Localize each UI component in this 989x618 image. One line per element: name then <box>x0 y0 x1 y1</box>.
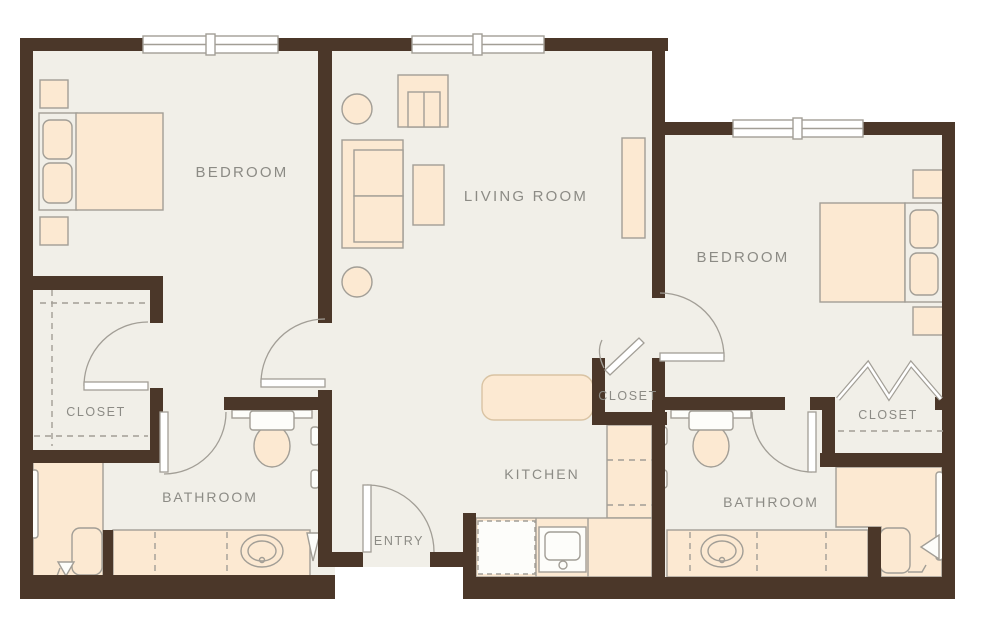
bed-left <box>39 113 163 210</box>
label-kitchen: KITCHEN <box>504 466 579 482</box>
window <box>143 34 278 55</box>
console-table <box>622 138 645 238</box>
kitchen-island <box>482 375 593 420</box>
window <box>412 34 544 55</box>
vanity-right <box>667 530 868 577</box>
coffee-table <box>413 165 444 225</box>
nightstand <box>40 217 68 245</box>
nightstand <box>913 170 943 198</box>
nightstand <box>40 80 68 108</box>
toilet-bowl <box>693 425 729 467</box>
kitchen-counter-right <box>607 425 652 518</box>
exterior-notch <box>335 567 463 600</box>
nightstand <box>913 307 943 335</box>
label-bathroom-right: BATHROOM <box>723 494 819 510</box>
sofa <box>342 140 403 248</box>
plant <box>342 94 372 124</box>
towel-bar <box>311 427 319 445</box>
floor-plan-canvas: BEDROOM LIVING ROOM BEDROOM CLOSET CLOSE… <box>0 0 989 618</box>
shower-bench <box>72 528 102 575</box>
label-bathroom-left: BATHROOM <box>162 489 258 505</box>
bed-right <box>820 203 943 302</box>
toilet-bowl <box>254 425 290 467</box>
label-bedroom-left: BEDROOM <box>196 164 289 181</box>
label-closet-left: CLOSET <box>66 405 126 419</box>
tv-cabinet <box>398 75 448 127</box>
dishwasher <box>478 521 535 574</box>
shower-bench <box>880 528 910 573</box>
toilet-tank <box>689 411 733 430</box>
toilet-tank <box>250 411 294 430</box>
label-entry: ENTRY <box>374 534 424 548</box>
label-closet-right: CLOSET <box>858 408 918 422</box>
plant <box>342 267 372 297</box>
label-living-room: LIVING ROOM <box>464 188 588 205</box>
floor-plan: BEDROOM LIVING ROOM BEDROOM CLOSET CLOSE… <box>0 0 989 618</box>
label-bedroom-right: BEDROOM <box>697 249 790 266</box>
window <box>733 118 863 139</box>
label-closet-center: CLOSET <box>598 389 658 403</box>
towel-bar <box>311 470 319 488</box>
